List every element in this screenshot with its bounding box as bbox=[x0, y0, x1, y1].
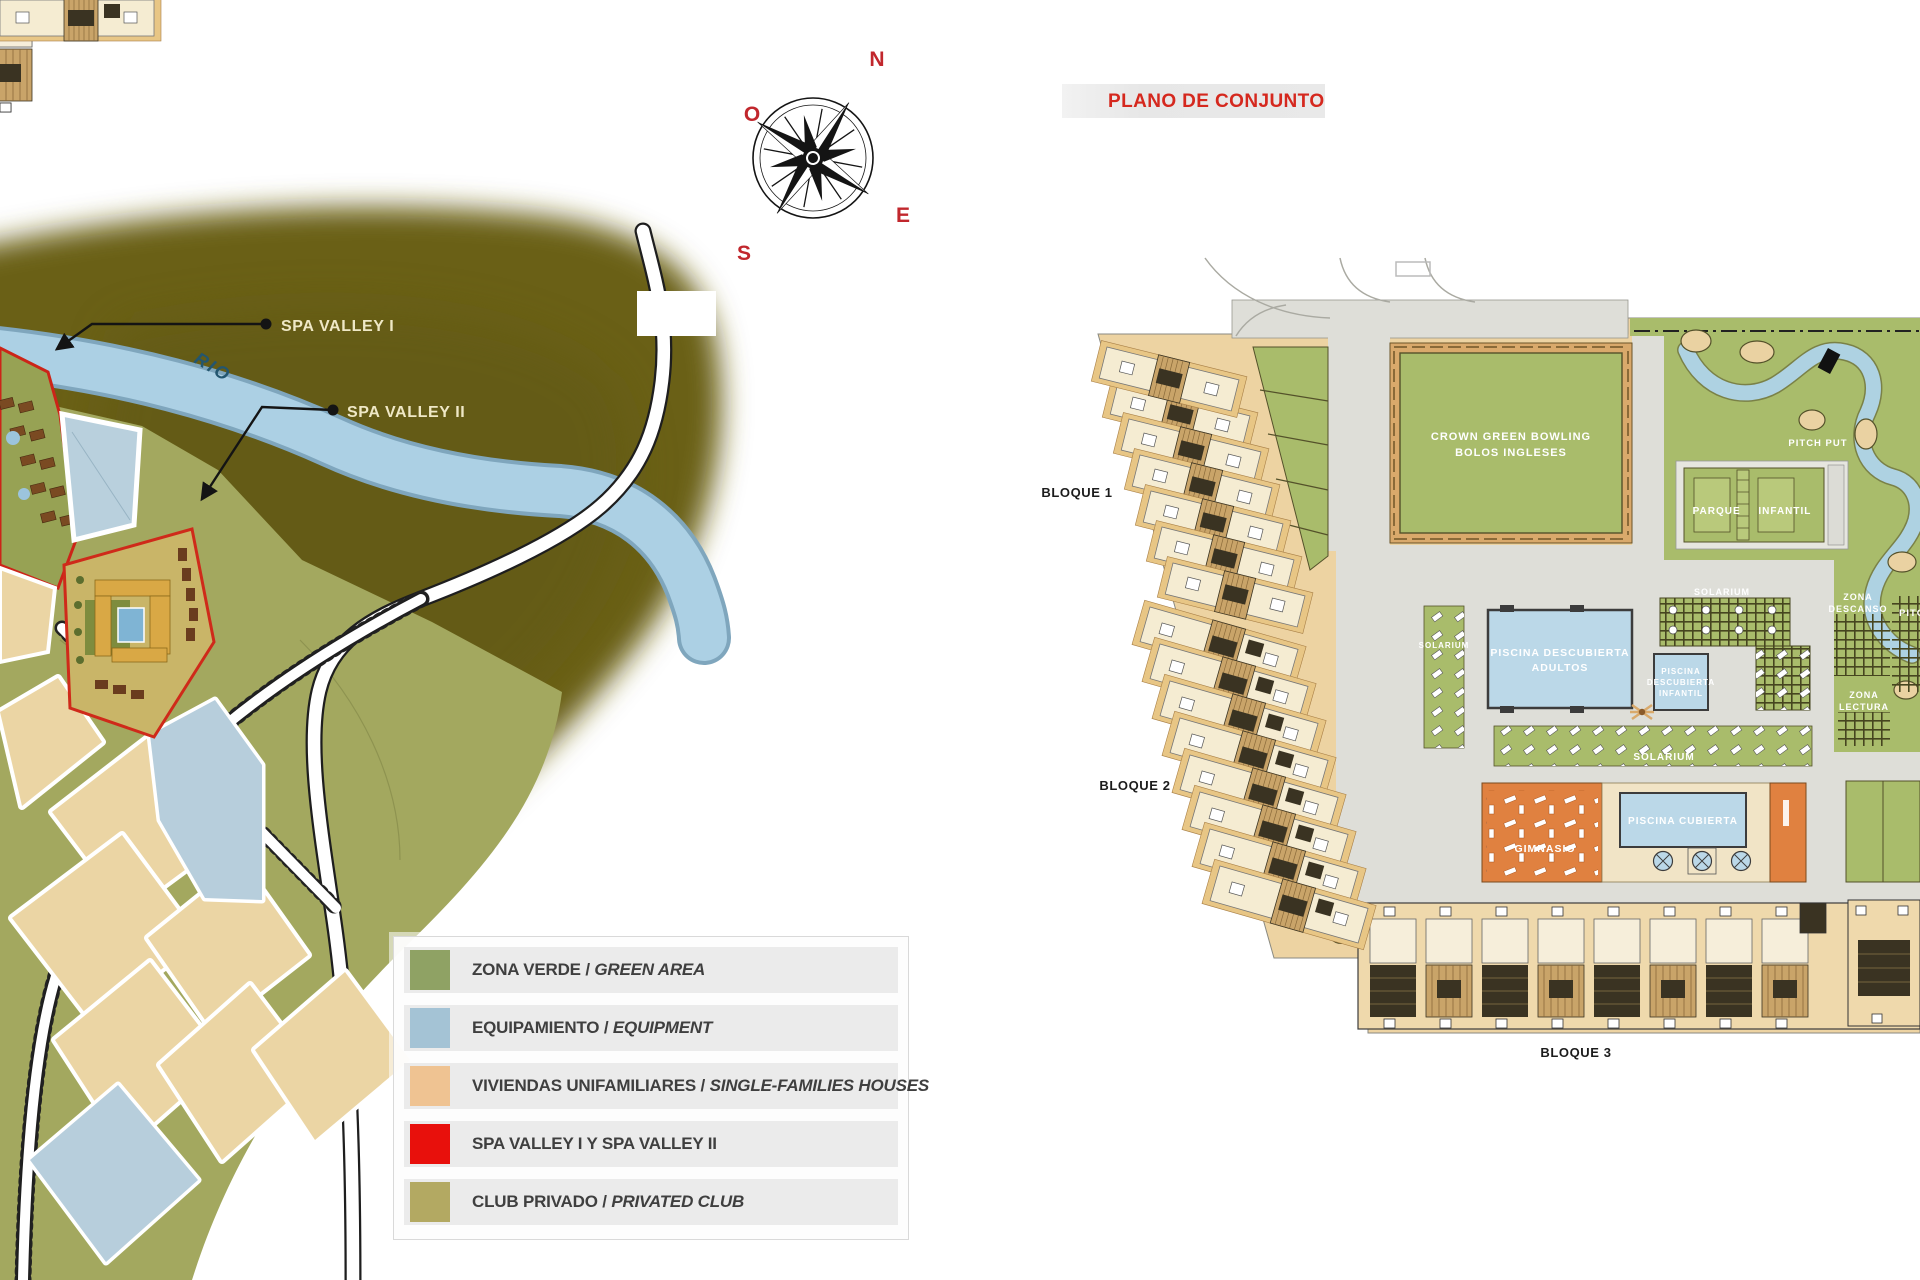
svg-text:LECTURA: LECTURA bbox=[1839, 702, 1889, 712]
spa-valley-1-label: SPA VALLEY I bbox=[281, 318, 394, 335]
spa-building: PISCINA CUBIERTA GIMNASIO bbox=[1482, 781, 1920, 882]
bowling-green: CROWN GREEN BOWLING BOLOS INGLESES bbox=[1390, 343, 1632, 543]
legend-swatch-green bbox=[410, 950, 450, 990]
solarium-bottom: SOLARIUM bbox=[1494, 726, 1812, 766]
svg-text:SOLARIUM: SOLARIUM bbox=[1633, 752, 1694, 763]
plan-title-bar: PLANO DE CONJUNTO bbox=[1062, 84, 1325, 118]
parque-infantil-label: PARQUE INFANTIL bbox=[1693, 506, 1812, 517]
svg-text:DESCANSO: DESCANSO bbox=[1828, 604, 1887, 614]
bowling-label-2: BOLOS INGLESES bbox=[1455, 447, 1567, 459]
legend-item: CLUB PRIVADO / PRIVATED CLUB bbox=[404, 1179, 898, 1225]
piscina-cubierta-label: PISCINA CUBIERTA bbox=[1628, 816, 1738, 827]
legend-item: ZONA VERDE / GREEN AREA bbox=[404, 947, 898, 993]
legend-swatch-red bbox=[410, 1124, 450, 1164]
pitch-edge-label: PITCH bbox=[1899, 608, 1920, 619]
fan-icons bbox=[1654, 852, 1751, 871]
pitch-put-label: PITCH PUT bbox=[1788, 438, 1847, 449]
legend-swatch-tan bbox=[410, 1066, 450, 1106]
master-plan-graphic: SPA VALLEY I SPA VALLEY II RIO bbox=[0, 0, 1920, 1280]
compass-s: S bbox=[737, 242, 751, 265]
legend-swatch-blue bbox=[410, 1008, 450, 1048]
compass-e: E bbox=[896, 204, 910, 227]
svg-text:PISCINA: PISCINA bbox=[1661, 667, 1700, 676]
legend-item: EQUIPAMIENTO / EQUIPMENT bbox=[404, 1005, 898, 1051]
svg-text:INFANTIL: INFANTIL bbox=[1659, 689, 1703, 698]
legend-item: SPA VALLEY I Y SPA VALLEY II bbox=[404, 1121, 898, 1167]
map-legend: ZONA VERDE / GREEN AREA EQUIPAMIENTO / E… bbox=[393, 936, 909, 1240]
svg-text:SOLARIUM: SOLARIUM bbox=[1419, 641, 1470, 650]
svg-text:SOLARIUM: SOLARIUM bbox=[1694, 587, 1750, 597]
compass-o: O bbox=[744, 103, 760, 126]
svg-text:ADULTOS: ADULTOS bbox=[1532, 662, 1589, 674]
svg-text:PISCINA DESCUBIERTA: PISCINA DESCUBIERTA bbox=[1490, 647, 1629, 659]
gimnasio-label: GIMNASIO bbox=[1514, 843, 1575, 855]
compass-n: N bbox=[869, 48, 884, 71]
blank-patch bbox=[637, 291, 716, 336]
solarium-left: SOLARIUM bbox=[1419, 606, 1470, 748]
parque-infantil: PARQUE INFANTIL bbox=[1676, 461, 1848, 549]
piscina-adultos: PISCINA DESCUBIERTA ADULTOS bbox=[1488, 605, 1632, 713]
bloque-1-label: BLOQUE 1 bbox=[1041, 485, 1112, 500]
svg-text:ZONA: ZONA bbox=[1843, 592, 1873, 602]
equipamiento-zone bbox=[62, 414, 140, 540]
legend-swatch-olive bbox=[410, 1182, 450, 1222]
legend-item: VIVIENDAS UNIFAMILIARES / SINGLE-FAMILIE… bbox=[404, 1063, 898, 1109]
plan-title: PLANO DE CONJUNTO bbox=[1062, 84, 1325, 119]
bowling-label-1: CROWN GREEN BOWLING bbox=[1431, 431, 1591, 443]
master-plan-sheet: SPA VALLEY I SPA VALLEY II RIO bbox=[0, 0, 1920, 1280]
bloque-3-label: BLOQUE 3 bbox=[1540, 1045, 1611, 1060]
svg-text:DESCUBIERTA: DESCUBIERTA bbox=[1647, 678, 1715, 687]
compass-rose: N O E S bbox=[722, 48, 910, 265]
bloque-2-label: BLOQUE 2 bbox=[1099, 778, 1170, 793]
piscina-infantil: PISCINA DESCUBIERTA INFANTIL bbox=[1647, 654, 1715, 710]
svg-text:ZONA: ZONA bbox=[1849, 690, 1879, 700]
spa-valley-2-label: SPA VALLEY II bbox=[347, 404, 465, 421]
